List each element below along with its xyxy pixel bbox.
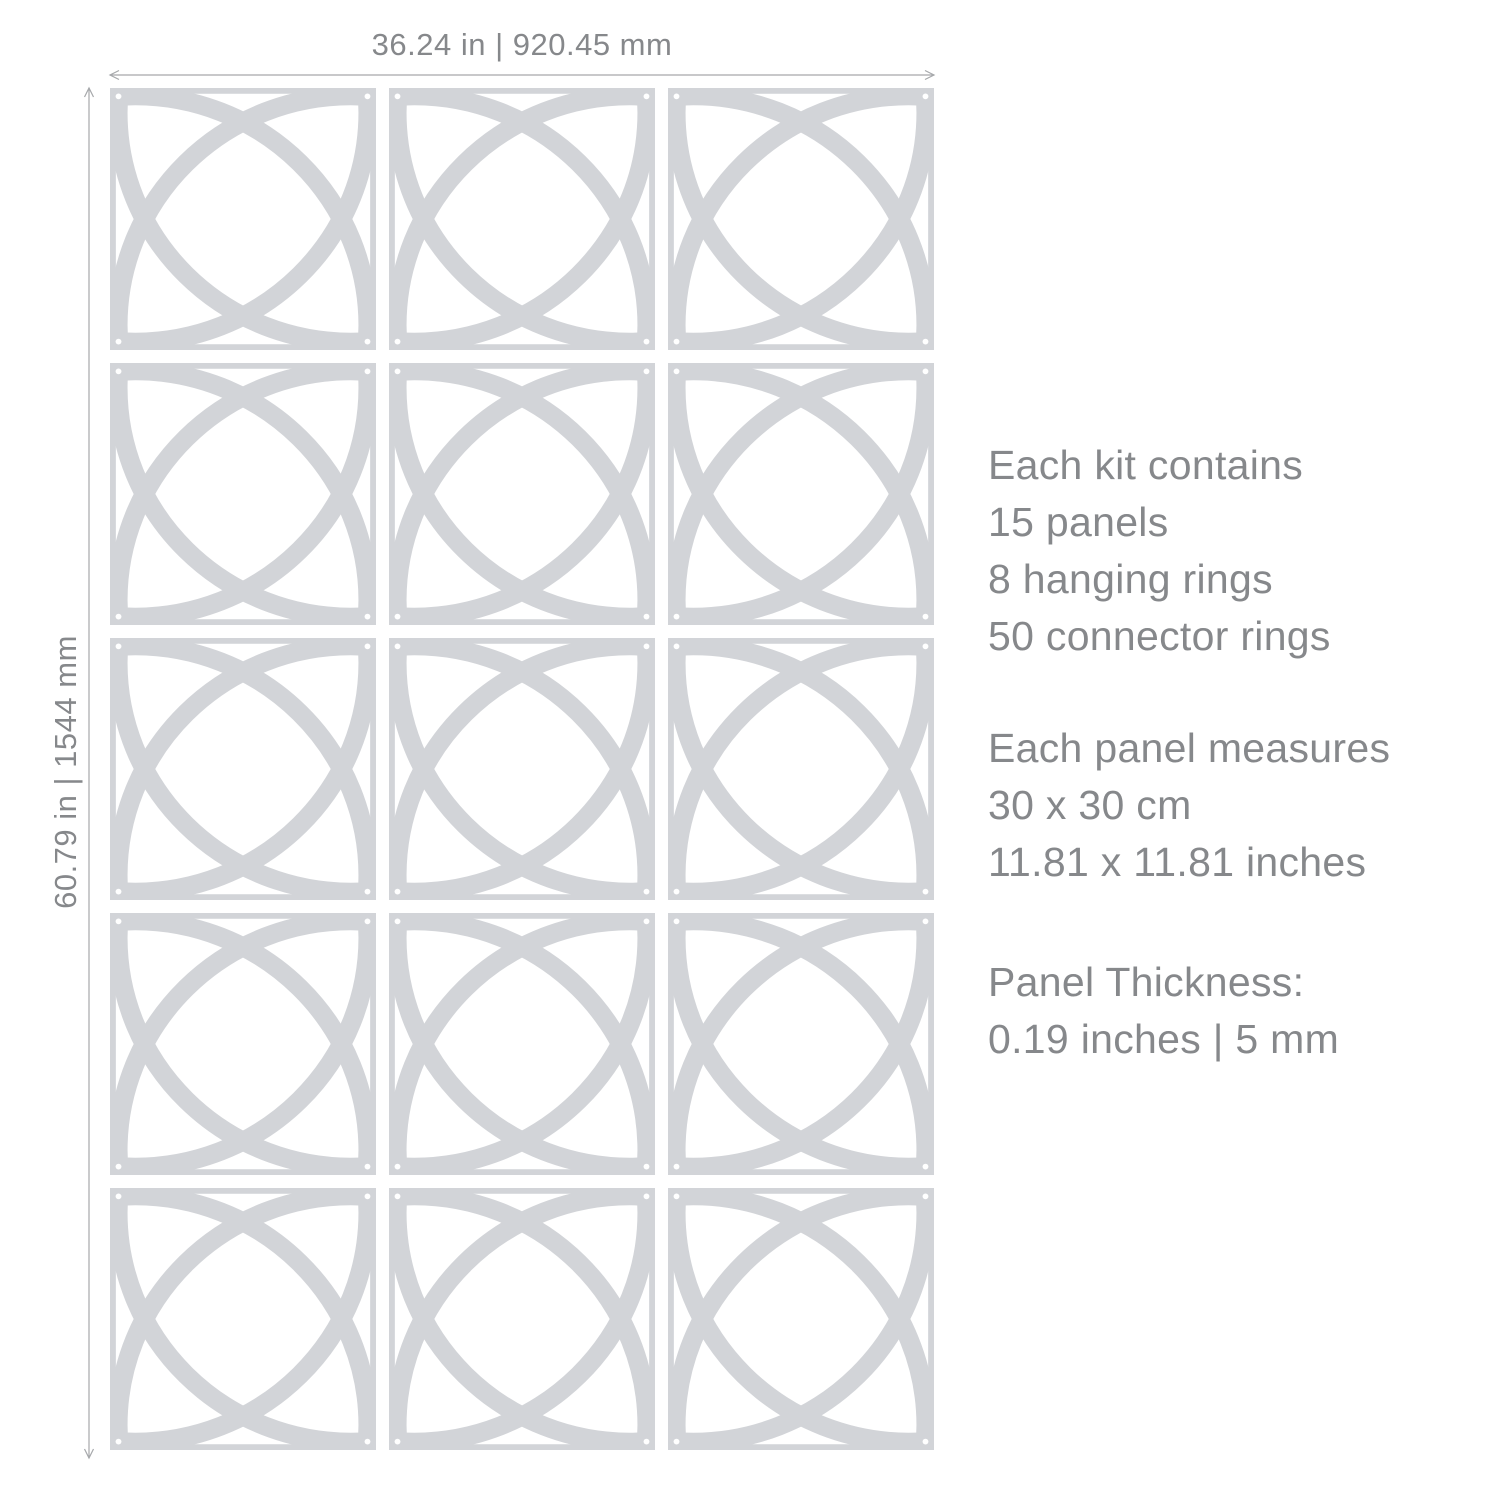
corner-hole [116, 94, 122, 100]
panel-tile [110, 913, 376, 1175]
corner-hole [923, 614, 929, 620]
corner-hole [923, 919, 929, 925]
corner-hole [674, 1439, 680, 1445]
corner-hole [923, 1439, 929, 1445]
corner-hole [116, 339, 122, 345]
info-line: Each panel measures [988, 720, 1390, 777]
info-line: Each kit contains [988, 437, 1331, 494]
product-dimension-diagram: 36.24 in | 920.45 mm 60.79 in | 1544 mm [0, 0, 1500, 1500]
corner-hole [395, 94, 401, 100]
info-line: Panel Thickness: [988, 954, 1339, 1011]
corner-hole [365, 889, 371, 895]
corner-hole [644, 1164, 650, 1170]
panel-tile [668, 913, 934, 1175]
corner-hole [365, 614, 371, 620]
corner-hole [395, 889, 401, 895]
corner-hole [116, 889, 122, 895]
corner-hole [644, 1439, 650, 1445]
panel-tile [389, 638, 655, 900]
corner-hole [365, 369, 371, 375]
corner-hole [365, 1439, 371, 1445]
panel-tile [389, 88, 655, 350]
corner-hole [674, 889, 680, 895]
corner-hole [116, 919, 122, 925]
corner-hole [116, 369, 122, 375]
panel-tile [668, 363, 934, 625]
width-dimension-label: 36.24 in | 920.45 mm [110, 28, 934, 62]
corner-hole [674, 1194, 680, 1200]
corner-hole [395, 644, 401, 650]
panel-tile [668, 88, 934, 350]
panel-tile [110, 1188, 376, 1450]
panel-size-text: Each panel measures 30 x 30 cm 11.81 x 1… [988, 720, 1390, 891]
corner-hole [644, 919, 650, 925]
corner-hole [923, 369, 929, 375]
corner-hole [644, 339, 650, 345]
info-line: 0.19 inches | 5 mm [988, 1011, 1339, 1068]
width-dimension-line [104, 67, 940, 83]
corner-hole [644, 614, 650, 620]
panel-tile [389, 363, 655, 625]
corner-hole [365, 1164, 371, 1170]
corner-hole [395, 919, 401, 925]
kit-contents-text: Each kit contains 15 panels 8 hanging ri… [988, 437, 1331, 665]
panel-thickness-text: Panel Thickness: 0.19 inches | 5 mm [988, 954, 1339, 1068]
panel-tile [110, 638, 376, 900]
corner-hole [674, 94, 680, 100]
corner-hole [923, 94, 929, 100]
corner-hole [674, 369, 680, 375]
corner-hole [674, 614, 680, 620]
info-line: 11.81 x 11.81 inches [988, 834, 1390, 891]
corner-hole [395, 614, 401, 620]
corner-hole [395, 369, 401, 375]
corner-hole [674, 644, 680, 650]
corner-hole [116, 614, 122, 620]
corner-hole [644, 889, 650, 895]
corner-hole [116, 1194, 122, 1200]
corner-hole [644, 644, 650, 650]
corner-hole [674, 1164, 680, 1170]
corner-hole [644, 94, 650, 100]
corner-hole [923, 1194, 929, 1200]
corner-hole [365, 919, 371, 925]
corner-hole [644, 1194, 650, 1200]
height-dimension-label: 60.79 in | 1544 mm [49, 635, 83, 909]
corner-hole [395, 1439, 401, 1445]
corner-hole [644, 369, 650, 375]
corner-hole [923, 1164, 929, 1170]
corner-hole [365, 1194, 371, 1200]
corner-hole [923, 339, 929, 345]
panel-tile [110, 88, 376, 350]
panel-tile [110, 363, 376, 625]
panel-tile [668, 1188, 934, 1450]
panel-tile [389, 1188, 655, 1450]
info-line: 30 x 30 cm [988, 777, 1390, 834]
corner-hole [116, 1439, 122, 1445]
info-line: 15 panels [988, 494, 1331, 551]
corner-hole [395, 339, 401, 345]
corner-hole [395, 1194, 401, 1200]
corner-hole [116, 1164, 122, 1170]
info-line: 8 hanging rings [988, 551, 1331, 608]
corner-hole [365, 94, 371, 100]
corner-hole [395, 1164, 401, 1170]
corner-hole [674, 339, 680, 345]
corner-hole [923, 644, 929, 650]
corner-hole [365, 339, 371, 345]
corner-hole [674, 919, 680, 925]
corner-hole [116, 644, 122, 650]
corner-hole [923, 889, 929, 895]
corner-hole [365, 644, 371, 650]
panel-tile [389, 913, 655, 1175]
height-dimension-line [81, 80, 97, 1470]
panel-tile [668, 638, 934, 900]
panel-grid [110, 88, 934, 1450]
info-line: 50 connector rings [988, 608, 1331, 665]
